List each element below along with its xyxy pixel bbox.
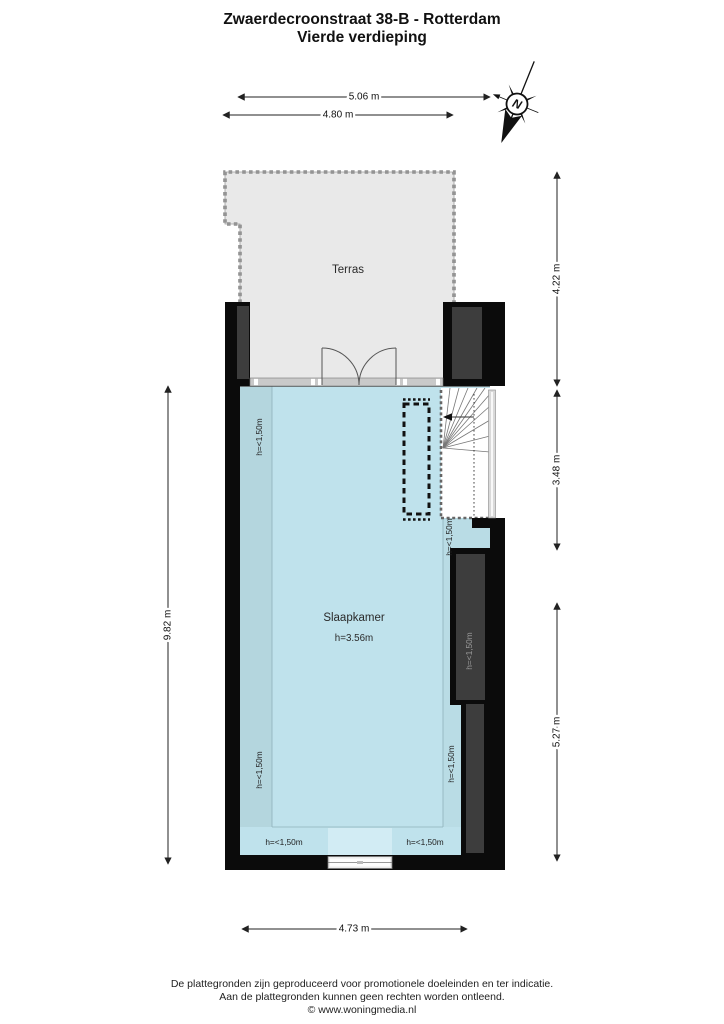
low-clearance-label-bottom-right: h=<1,50m — [406, 837, 443, 847]
page-title: Zwaerdecroonstraat 38-B - Rotterdam — [223, 11, 500, 28]
dim-bottom-label: 4.73 m — [339, 924, 370, 935]
window-light-patch — [328, 828, 392, 855]
wall-left — [225, 386, 240, 870]
dim-left-label: 9.82 m — [163, 610, 174, 641]
dim-right-lower-label: 5.27 m — [552, 717, 563, 748]
low-clearance-label-niche: h=<1,50m — [464, 632, 474, 669]
low-clearance-label-bottom-left: h=<1,50m — [265, 837, 302, 847]
low-clearance-label-left-upper: h=<1,50m — [254, 418, 264, 455]
dim-right-upper-label: 4.22 m — [552, 264, 563, 295]
wall-pillar-right-inset — [452, 307, 482, 379]
low-clearance-label-right-lower: h=<1,50m — [446, 745, 456, 782]
footer-copyright: © www.woningmedia.nl — [308, 1004, 417, 1016]
bottom-window — [328, 857, 392, 869]
wall-stub-right — [472, 518, 505, 528]
terrace-area — [225, 172, 454, 386]
floorplan-drawing: Zwaerdecroonstraat 38-B - Rotterdam Vier… — [0, 0, 724, 1024]
stair-window — [489, 390, 496, 518]
low-clearance-label-right-upper: h=<1,50m — [444, 518, 454, 555]
wall-pillar-left-inset — [237, 306, 249, 379]
page-subtitle: Vierde verdieping — [297, 29, 427, 46]
floorplan-page: Zwaerdecroonstraat 38-B - Rotterdam Vier… — [0, 0, 724, 1024]
footer-disclaimer-line1: De plattegronden zijn geproduceerd voor … — [171, 978, 553, 990]
window-band-top — [250, 378, 443, 386]
compass-north-icon: N — [477, 52, 555, 152]
bedroom-height-label: h=3.56m — [335, 633, 373, 644]
dim-right-middle-label: 3.48 m — [552, 455, 563, 486]
dim-top-inner-label: 4.80 m — [323, 110, 354, 121]
low-clearance-label-left-lower: h=<1,50m — [254, 751, 264, 788]
terrace-label: Terras — [332, 264, 364, 276]
dim-top-outer-label: 5.06 m — [349, 92, 380, 103]
staircase — [441, 388, 490, 518]
footer-disclaimer-line2: Aan de plattegronden kunnen geen rechten… — [219, 991, 504, 1003]
wall-niche-right-inset — [456, 554, 485, 700]
wall-strip-right-inset — [466, 704, 484, 853]
bedroom-label: Slaapkamer — [323, 612, 385, 624]
